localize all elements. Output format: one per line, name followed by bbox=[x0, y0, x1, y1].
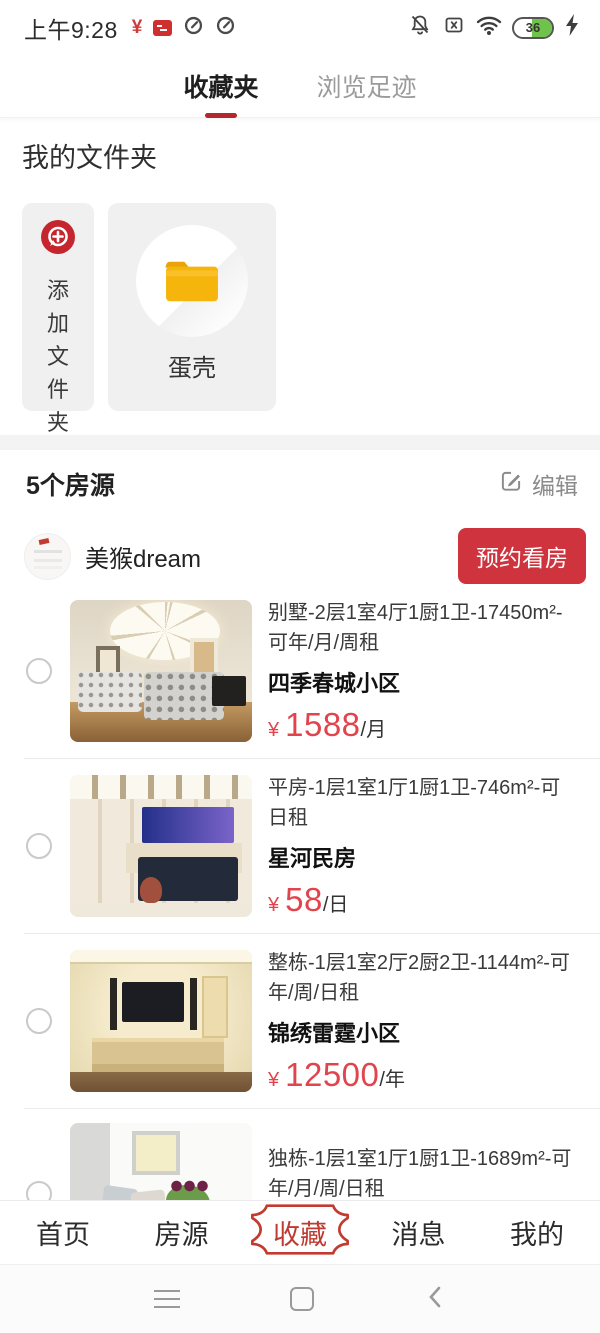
nav-home-label: 首页 bbox=[36, 1220, 90, 1250]
photo-desk bbox=[92, 1038, 224, 1074]
folder-icon bbox=[136, 225, 248, 337]
tab-history-label: 浏览足迹 bbox=[317, 74, 417, 102]
listing-photo bbox=[70, 600, 252, 742]
nav-home[interactable]: 首页 bbox=[30, 1209, 96, 1256]
app-notification-badge-icon bbox=[153, 20, 172, 36]
folders-title: 我的文件夹 bbox=[22, 136, 578, 175]
sim-missing-icon bbox=[442, 13, 466, 42]
nav-profile[interactable]: 我的 bbox=[504, 1209, 570, 1256]
listing-row[interactable]: 别墅-2层1室4厅1厨1卫-17450m²-可年/月/周租 四季春城小区 ¥ 1… bbox=[0, 584, 600, 758]
photo-wall-art bbox=[132, 1131, 180, 1175]
listing-price-row: ¥ 58 /日 bbox=[268, 881, 580, 919]
listing-photo bbox=[70, 950, 252, 1092]
listing-info: 别墅-2层1室4厅1厨1卫-17450m²-可年/月/周租 四季春城小区 ¥ 1… bbox=[268, 598, 580, 744]
photo-speaker bbox=[190, 978, 197, 1030]
avatar[interactable] bbox=[24, 533, 71, 580]
currency-symbol: ¥ bbox=[268, 1069, 279, 1092]
tab-history[interactable]: 浏览足迹 bbox=[317, 68, 417, 104]
tab-favorites[interactable]: 收藏夹 bbox=[183, 68, 258, 104]
nav-listings-label: 房源 bbox=[155, 1220, 209, 1250]
clock: 上午9:28 bbox=[24, 11, 118, 45]
listing-price-row: ¥ 12500 /年 bbox=[268, 1056, 580, 1094]
listing-info: 整栋-1层1室2厅2厨2卫-1144m²-可年/周/日租 锦绣雷霆小区 ¥ 12… bbox=[268, 948, 580, 1094]
folder-card[interactable]: 蛋壳 bbox=[108, 203, 276, 411]
folders-row: 添加文件夹 蛋壳 bbox=[22, 203, 578, 411]
listings-list: 别墅-2层1室4厅1厨1卫-17450m²-可年/月/周租 四季春城小区 ¥ 1… bbox=[0, 584, 600, 1279]
price-value: 1588 bbox=[285, 706, 360, 744]
add-folder-icon bbox=[40, 219, 76, 260]
active-tab-underline bbox=[205, 113, 237, 118]
nav-messages[interactable]: 消息 bbox=[386, 1209, 452, 1256]
folder-name: 蛋壳 bbox=[108, 348, 276, 383]
photo-banner bbox=[142, 807, 234, 843]
photo-ceiling bbox=[70, 775, 252, 799]
recents-menu-icon[interactable] bbox=[154, 1290, 180, 1308]
home-square-icon[interactable] bbox=[290, 1287, 314, 1311]
nav-profile-label: 我的 bbox=[510, 1220, 564, 1250]
listing-name: 四季春城小区 bbox=[268, 666, 580, 698]
nav-listings[interactable]: 房源 bbox=[149, 1209, 215, 1256]
listings-header: 5个房源 编辑 bbox=[0, 450, 600, 502]
price-value: 12500 bbox=[285, 1056, 379, 1094]
photo-floor bbox=[70, 903, 252, 917]
listing-info: 平房-1层1室1厅1厨1卫-746m²-可日租 星河民房 ¥ 58 /日 bbox=[268, 773, 580, 919]
listing-row[interactable]: 平房-1层1室1厅1厨1卫-746m²-可日租 星河民房 ¥ 58 /日 bbox=[0, 759, 600, 933]
select-circle[interactable] bbox=[26, 1008, 52, 1034]
status-left-icons: ¥ bbox=[132, 15, 237, 41]
add-folder-button[interactable]: 添加文件夹 bbox=[22, 203, 94, 411]
data-saver-icon-2 bbox=[215, 15, 236, 41]
listing-price-row: ¥ 1588 /月 bbox=[268, 706, 580, 744]
photo-speaker bbox=[110, 978, 117, 1030]
edit-icon bbox=[498, 468, 524, 500]
owner-name: 美猴dream bbox=[85, 539, 201, 574]
nav-favorites[interactable]: 收藏 bbox=[267, 1209, 333, 1256]
photo-tulips bbox=[170, 1179, 210, 1193]
photo-tv bbox=[212, 676, 246, 706]
back-chevron-icon[interactable] bbox=[424, 1284, 446, 1315]
listing-desc: 独栋-1层1室1厅1厨1卫-1689m²-可年/月/周/日租 bbox=[268, 1144, 580, 1204]
listing-desc: 平房-1层1室1厅1厨1卫-746m²-可日租 bbox=[268, 773, 580, 833]
top-tab-bar: 收藏夹 浏览足迹 bbox=[0, 55, 600, 118]
yen-notification-icon: ¥ bbox=[132, 17, 143, 39]
status-bar: 上午9:28 ¥ 36 bbox=[0, 0, 600, 55]
owner-row: 美猴dream 预约看房 bbox=[0, 528, 600, 584]
currency-symbol: ¥ bbox=[268, 894, 279, 917]
book-viewing-button[interactable]: 预约看房 bbox=[458, 528, 586, 584]
nav-favorites-label: 收藏 bbox=[273, 1220, 327, 1250]
bell-muted-icon bbox=[408, 13, 432, 42]
folders-section: 我的文件夹 添加文件夹 蛋壳 bbox=[0, 136, 600, 411]
photo-ceiling bbox=[70, 950, 252, 964]
select-circle[interactable] bbox=[26, 833, 52, 859]
app-screen: 上午9:28 ¥ 36 bbox=[0, 0, 600, 1333]
wifi-icon bbox=[476, 14, 502, 41]
listing-photo bbox=[70, 775, 252, 917]
listing-desc: 整栋-1层1室2厅2厨2卫-1144m²-可年/周/日租 bbox=[268, 948, 580, 1008]
photo-bed bbox=[78, 672, 142, 712]
listing-row[interactable]: 整栋-1层1室2厅2厨2卫-1144m²-可年/周/日租 锦绣雷霆小区 ¥ 12… bbox=[0, 934, 600, 1108]
price-unit: /年 bbox=[379, 1063, 405, 1092]
listing-name: 锦绣雷霆小区 bbox=[268, 1016, 580, 1048]
photo-door bbox=[202, 976, 228, 1038]
photo-plant bbox=[140, 877, 162, 903]
listing-name: 星河民房 bbox=[268, 841, 580, 873]
add-folder-label: 添加文件夹 bbox=[44, 274, 72, 439]
price-value: 58 bbox=[285, 881, 323, 919]
edit-label: 编辑 bbox=[532, 467, 578, 501]
photo-floor bbox=[70, 1072, 252, 1092]
listings-count: 5个房源 bbox=[26, 466, 115, 502]
battery-level: 36 bbox=[526, 20, 540, 35]
android-nav-bar bbox=[0, 1264, 600, 1333]
status-right-icons: 36 bbox=[408, 13, 580, 42]
price-unit: /日 bbox=[323, 888, 349, 917]
select-circle[interactable] bbox=[26, 658, 52, 684]
nav-messages-label: 消息 bbox=[392, 1220, 446, 1250]
section-divider bbox=[0, 435, 600, 450]
data-saver-icon bbox=[183, 15, 204, 41]
battery-icon: 36 bbox=[512, 17, 554, 39]
edit-button[interactable]: 编辑 bbox=[498, 467, 578, 501]
photo-tv bbox=[122, 982, 184, 1022]
currency-symbol: ¥ bbox=[268, 719, 279, 742]
price-unit: /月 bbox=[361, 713, 387, 742]
tab-favorites-label: 收藏夹 bbox=[183, 74, 258, 102]
bottom-nav-bar: 首页 房源 收藏 消息 我的 bbox=[0, 1200, 600, 1264]
charging-bolt-icon bbox=[564, 13, 580, 42]
listing-desc: 别墅-2层1室4厅1厨1卫-17450m²-可年/月/周租 bbox=[268, 598, 580, 658]
